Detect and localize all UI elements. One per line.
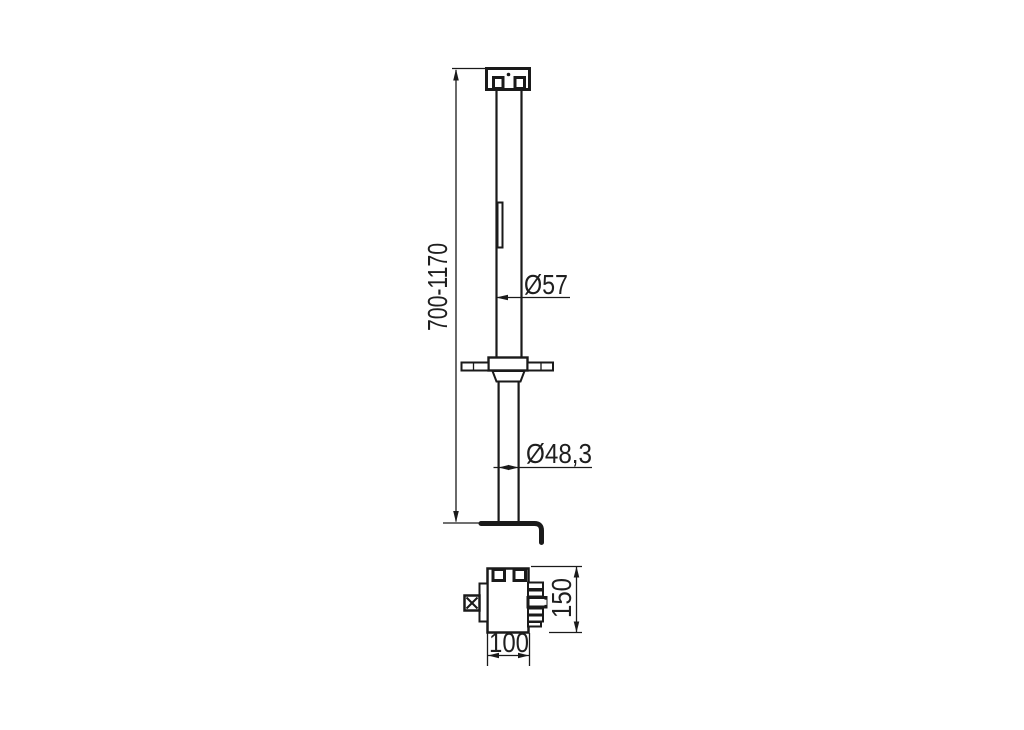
clamp-rib [528,609,543,615]
base-depth-arrow-bottom [574,622,580,633]
head-slot-left [494,78,504,89]
head-pin-hole [507,73,511,77]
dimension-height: 700-1170 [422,69,486,524]
head-plate [487,69,530,90]
drawing-page: 700-1170 Ø57 Ø48,3 [0,0,1024,730]
base-tab-right [514,570,526,581]
dimension-height-label: 700-1170 [422,243,453,331]
dimension-base-width: 100 [488,627,530,666]
upper-tube [497,90,522,358]
wing-handle-left [462,363,489,371]
dimension-lower-diameter: Ø48,3 [494,438,593,470]
clamp-rib [528,616,543,622]
collar-taper [493,371,525,382]
upper-diameter-label: Ø57 [524,269,568,300]
base-plate-plan [480,569,529,633]
clamp-rib [528,583,543,590]
lower-diameter-arrow-left [499,465,509,470]
base-tab-left [493,570,505,581]
adjustment-collar [462,358,554,382]
adjustment-slot [498,203,503,248]
base-depth-label: 150 [546,578,577,618]
technical-drawing-canvas: 700-1170 Ø57 Ø48,3 [0,0,1024,730]
lower-diameter-arrow-right [508,465,518,470]
wing-handle-right [528,363,554,371]
head-slot-right [515,78,525,89]
dimension-upper-diameter: Ø57 [496,269,570,300]
clamp-bolt [465,596,480,611]
collar-nut [489,358,528,371]
base-width-label: 100 [489,627,529,658]
dimension-height-arrow-top [453,69,459,81]
base-depth-arrow-top [574,567,580,578]
clamp-ribs [528,583,547,627]
bottom-view: 150 100 [465,567,583,667]
dimension-height-arrow-bottom [453,511,459,523]
lower-tube [499,382,519,522]
front-view: 700-1170 Ø57 Ø48,3 [422,69,592,543]
clamp-rib [528,591,543,597]
clamp-rib [528,622,541,627]
upper-diameter-arrow [496,295,508,300]
base-foot-angle [481,524,542,543]
lower-diameter-label: Ø48,3 [526,438,592,469]
base-foot [481,524,542,543]
